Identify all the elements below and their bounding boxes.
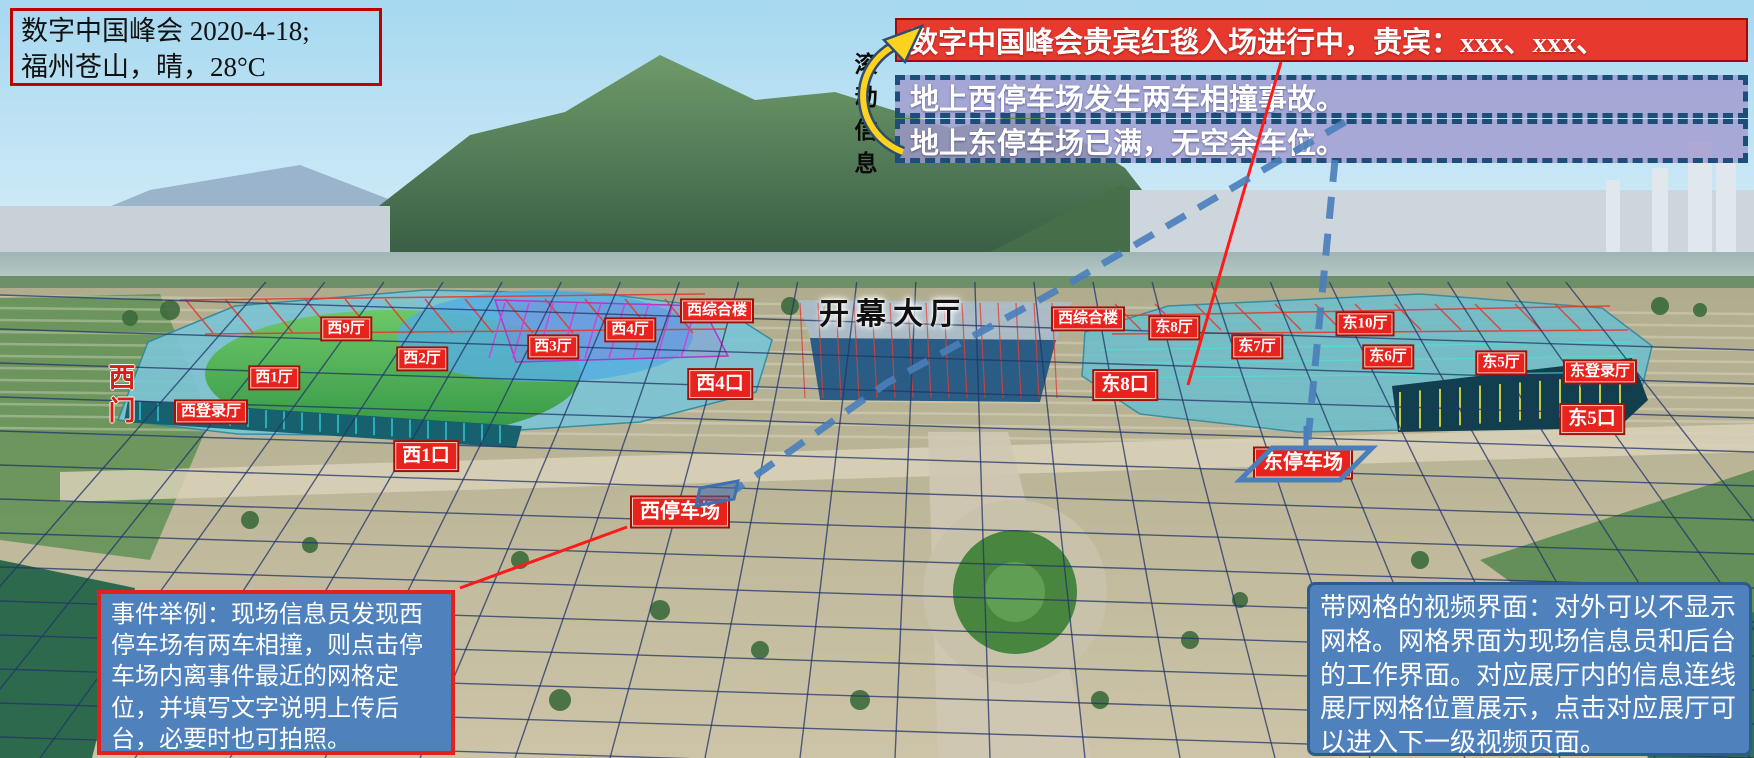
parking-east-label[interactable]: 东停车场 [1255,449,1351,478]
hall-west-2-label[interactable]: 西2厅 [398,348,446,369]
ticker-message-east-full: 地上东停车场已满，无空余车位。 [895,119,1748,163]
entrance-west-4-label[interactable]: 西4口 [689,370,751,398]
hall-east-5-label[interactable]: 东5厅 [1477,352,1525,373]
hall-opening-label[interactable]: 开幕大厅 [819,289,967,333]
hall-east-login-label[interactable]: 东登录厅 [1565,361,1635,382]
hall-east-8-label[interactable]: 东8厅 [1150,317,1198,338]
hall-east-7-label[interactable]: 东7厅 [1233,336,1281,357]
venue-grid-video-view: 开幕大厅 西门 西9厅西2厅西1厅西登录厅西3厅西4厅西综合楼西综合楼东8厅东7… [0,0,1754,758]
entrance-west-1-label[interactable]: 西1口 [395,442,457,470]
entrance-east-5-label[interactable]: 东5口 [1561,405,1623,433]
hall-east-10-label[interactable]: 东10厅 [1337,313,1392,334]
hall-east-6-label[interactable]: 东6厅 [1364,346,1412,367]
hall-west-9-label[interactable]: 西9厅 [322,318,370,339]
ticker-message-west-accident: 地上西停车场发生两车相撞事故。 [895,75,1748,118]
hall-west-complex-2-label[interactable]: 西综合楼 [1053,308,1123,329]
summit-date-line: 数字中国峰会 2020-4-18; [21,13,371,49]
entrance-east-8-label[interactable]: 东8口 [1094,371,1156,399]
hall-west-login-label[interactable]: 西登录厅 [176,401,246,422]
scrolling-info-caption: 滚动信息 [846,52,880,184]
vip-red-carpet-banner: 数字中国峰会贵宾红毯入场进行中，贵宾：xxx、xxx、 [895,18,1748,62]
grid-view-note: 带网格的视频界面：对外可以不显示网格。网格界面为现场信息员和后台的工作界面。对应… [1307,582,1752,756]
event-example-note: 事件举例：现场信息员发现西停车场有两车相撞，则点击停车场内离事件最近的网格定位，… [97,590,455,755]
gate-west-label[interactable]: 西门 [101,363,140,429]
summit-weather-line: 福州苍山，晴，28°C [21,49,371,85]
parking-west-label[interactable]: 西停车场 [632,498,728,527]
hall-west-3-label[interactable]: 西3厅 [529,336,577,357]
hall-west-4-label[interactable]: 西4厅 [606,319,654,340]
hall-west-1-label[interactable]: 西1厅 [250,367,298,388]
hall-west-complex-label[interactable]: 西综合楼 [682,300,752,321]
summit-info-box: 数字中国峰会 2020-4-18; 福州苍山，晴，28°C [10,8,382,86]
